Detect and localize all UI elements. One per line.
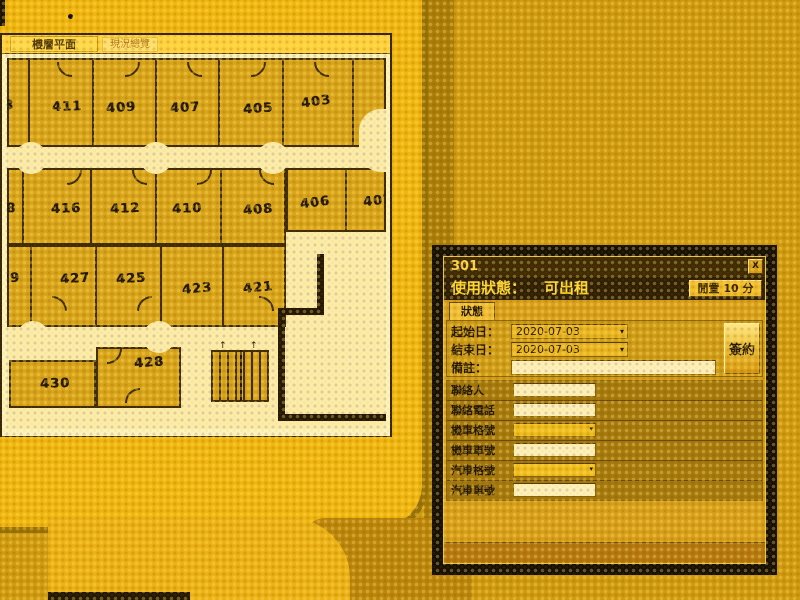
- corridor-end: [359, 109, 386, 172]
- tab-overview[interactable]: 現況總覽: [102, 37, 158, 52]
- date-combo[interactable]: 2020-07-03▾: [511, 342, 628, 357]
- chevron-down-icon: ▾: [589, 465, 593, 473]
- room-dialog: 301 X 使用狀態：可出租 閒置 10 分 狀態 簽約 起始日：2020-07…: [444, 257, 765, 563]
- floorplan-canvas[interactable]: ↑↑41341140940740540341841641241040840640…: [7, 58, 386, 429]
- wall-thick: [317, 254, 324, 314]
- room-409[interactable]: 409: [105, 99, 136, 116]
- stair-direction-icon: ↑: [250, 342, 258, 351]
- chevron-down-icon: ▾: [589, 425, 593, 433]
- form-row: 機車車號: [447, 441, 762, 461]
- floorplan-frame: ↑↑41341140940740540341841641241040840640…: [2, 53, 390, 436]
- room-428[interactable]: 428: [133, 354, 164, 371]
- room-412[interactable]: 412: [110, 201, 141, 218]
- wall: [345, 168, 347, 232]
- cursor-dot: [68, 14, 73, 19]
- desk-edge: [48, 592, 190, 600]
- form-input[interactable]: [513, 483, 596, 497]
- tab-floorplan-label: 樓層平面: [32, 38, 76, 51]
- room-429[interactable]: 429: [7, 270, 21, 287]
- room-427[interactable]: 427: [59, 270, 90, 287]
- wall: [28, 58, 30, 147]
- timer-button[interactable]: 閒置 10 分: [689, 280, 762, 297]
- wall: [155, 168, 157, 245]
- wall: [92, 58, 94, 147]
- room-410[interactable]: 410: [172, 201, 203, 218]
- app-tabbar: 樓層平面 現況總覽: [2, 35, 390, 53]
- status-label: 使用狀態：: [451, 279, 526, 297]
- tab-overview-label: 現況總覽: [110, 39, 150, 50]
- stairwell-divider: [240, 350, 242, 402]
- form-row: 汽車格號▾: [447, 461, 762, 481]
- dialog-title: 301: [451, 259, 478, 274]
- field-label: 起始日：: [451, 324, 511, 340]
- dialog-titlebar: 301 X: [444, 257, 765, 277]
- wall: [30, 245, 32, 327]
- close-icon[interactable]: X: [748, 259, 763, 274]
- remark-input[interactable]: [511, 360, 716, 375]
- tab-status[interactable]: 狀態: [449, 302, 495, 320]
- period-row: 起始日：2020-07-03▾: [451, 323, 720, 340]
- wall: [160, 245, 162, 327]
- wall: [282, 58, 284, 147]
- form-combo[interactable]: ▾: [513, 463, 596, 477]
- desk-surface: [48, 518, 350, 600]
- wall: [22, 168, 24, 245]
- form-input[interactable]: [513, 403, 596, 417]
- field-label: 聯絡電話: [447, 401, 762, 420]
- dialog-statusbar: [444, 542, 765, 563]
- monitor-screen: 樓層平面 現況總覽 ↑↑4134114094074054034184164124…: [0, 33, 392, 437]
- room-408[interactable]: 408: [242, 201, 273, 218]
- stair-direction-icon: ↑: [219, 342, 227, 351]
- field-label: 結束日：: [451, 342, 511, 358]
- room-430[interactable]: 430: [40, 376, 71, 392]
- room-405[interactable]: 405: [242, 100, 273, 117]
- form-input[interactable]: [513, 383, 596, 397]
- door-opening: [15, 142, 47, 174]
- room-407[interactable]: 407: [170, 100, 201, 117]
- door-opening: [143, 321, 175, 353]
- screen-corner-artifact: [0, 0, 5, 26]
- date-combo[interactable]: 2020-07-03▾: [511, 324, 628, 339]
- form-input[interactable]: [513, 443, 596, 457]
- form-combo[interactable]: ▾: [513, 423, 596, 437]
- form-row: 機車格號▾: [447, 421, 762, 441]
- door-opening: [17, 321, 49, 353]
- room-418[interactable]: 418: [7, 202, 16, 217]
- sign-contract-button[interactable]: 簽約: [724, 323, 760, 374]
- room-413[interactable]: 413: [7, 99, 14, 114]
- tab-floorplan[interactable]: 樓層平面: [10, 36, 98, 52]
- field-label: 備註：: [451, 360, 511, 376]
- dialog-panel: 301 X 使用狀態：可出租 閒置 10 分 狀態 簽約 起始日：2020-07…: [432, 245, 777, 575]
- dialog-tabrow: 狀態: [444, 300, 765, 320]
- wall-thick: [278, 414, 386, 421]
- form-row: 聯絡電話: [447, 401, 762, 421]
- room-421[interactable]: 421: [242, 279, 273, 297]
- chevron-down-icon: ▾: [620, 325, 624, 338]
- room-411[interactable]: 411: [52, 99, 83, 115]
- contact-form: 聯絡人聯絡電話機車格號▾機車車號汽車格號▾汽車車號: [446, 380, 763, 501]
- room-423[interactable]: 423: [181, 280, 212, 298]
- wall: [220, 168, 222, 245]
- door-opening: [257, 142, 289, 174]
- wall: [222, 245, 224, 327]
- field-label: 汽車車號: [447, 481, 762, 500]
- form-row: 聯絡人: [447, 381, 762, 401]
- wall: [95, 245, 97, 327]
- wall: [155, 58, 157, 147]
- field-label: 聯絡人: [447, 381, 762, 400]
- room-416[interactable]: 416: [51, 201, 82, 217]
- rental-period-group: 簽約 起始日：2020-07-03▾結束日：2020-07-03▾備註：: [446, 320, 763, 377]
- field-label: 機車格號: [447, 421, 762, 440]
- wall: [218, 58, 220, 147]
- form-row: 汽車車號: [447, 481, 762, 500]
- room-402[interactable]: 402: [362, 192, 386, 211]
- room-425[interactable]: 425: [115, 270, 146, 287]
- status-value: 可出租: [544, 279, 589, 297]
- wall-thick: [278, 308, 285, 420]
- period-row: 備註：: [451, 359, 720, 376]
- scene: 樓層平面 現況總覽 ↑↑4134114094074054034184164124…: [0, 0, 800, 600]
- door-opening: [140, 142, 172, 174]
- field-label: 機車車號: [447, 441, 762, 460]
- status-header: 使用狀態：可出租 閒置 10 分: [444, 277, 765, 300]
- chevron-down-icon: ▾: [620, 343, 624, 356]
- field-label: 汽車格號: [447, 461, 762, 480]
- wall: [90, 168, 92, 245]
- wall: [352, 58, 354, 147]
- period-row: 結束日：2020-07-03▾: [451, 341, 720, 358]
